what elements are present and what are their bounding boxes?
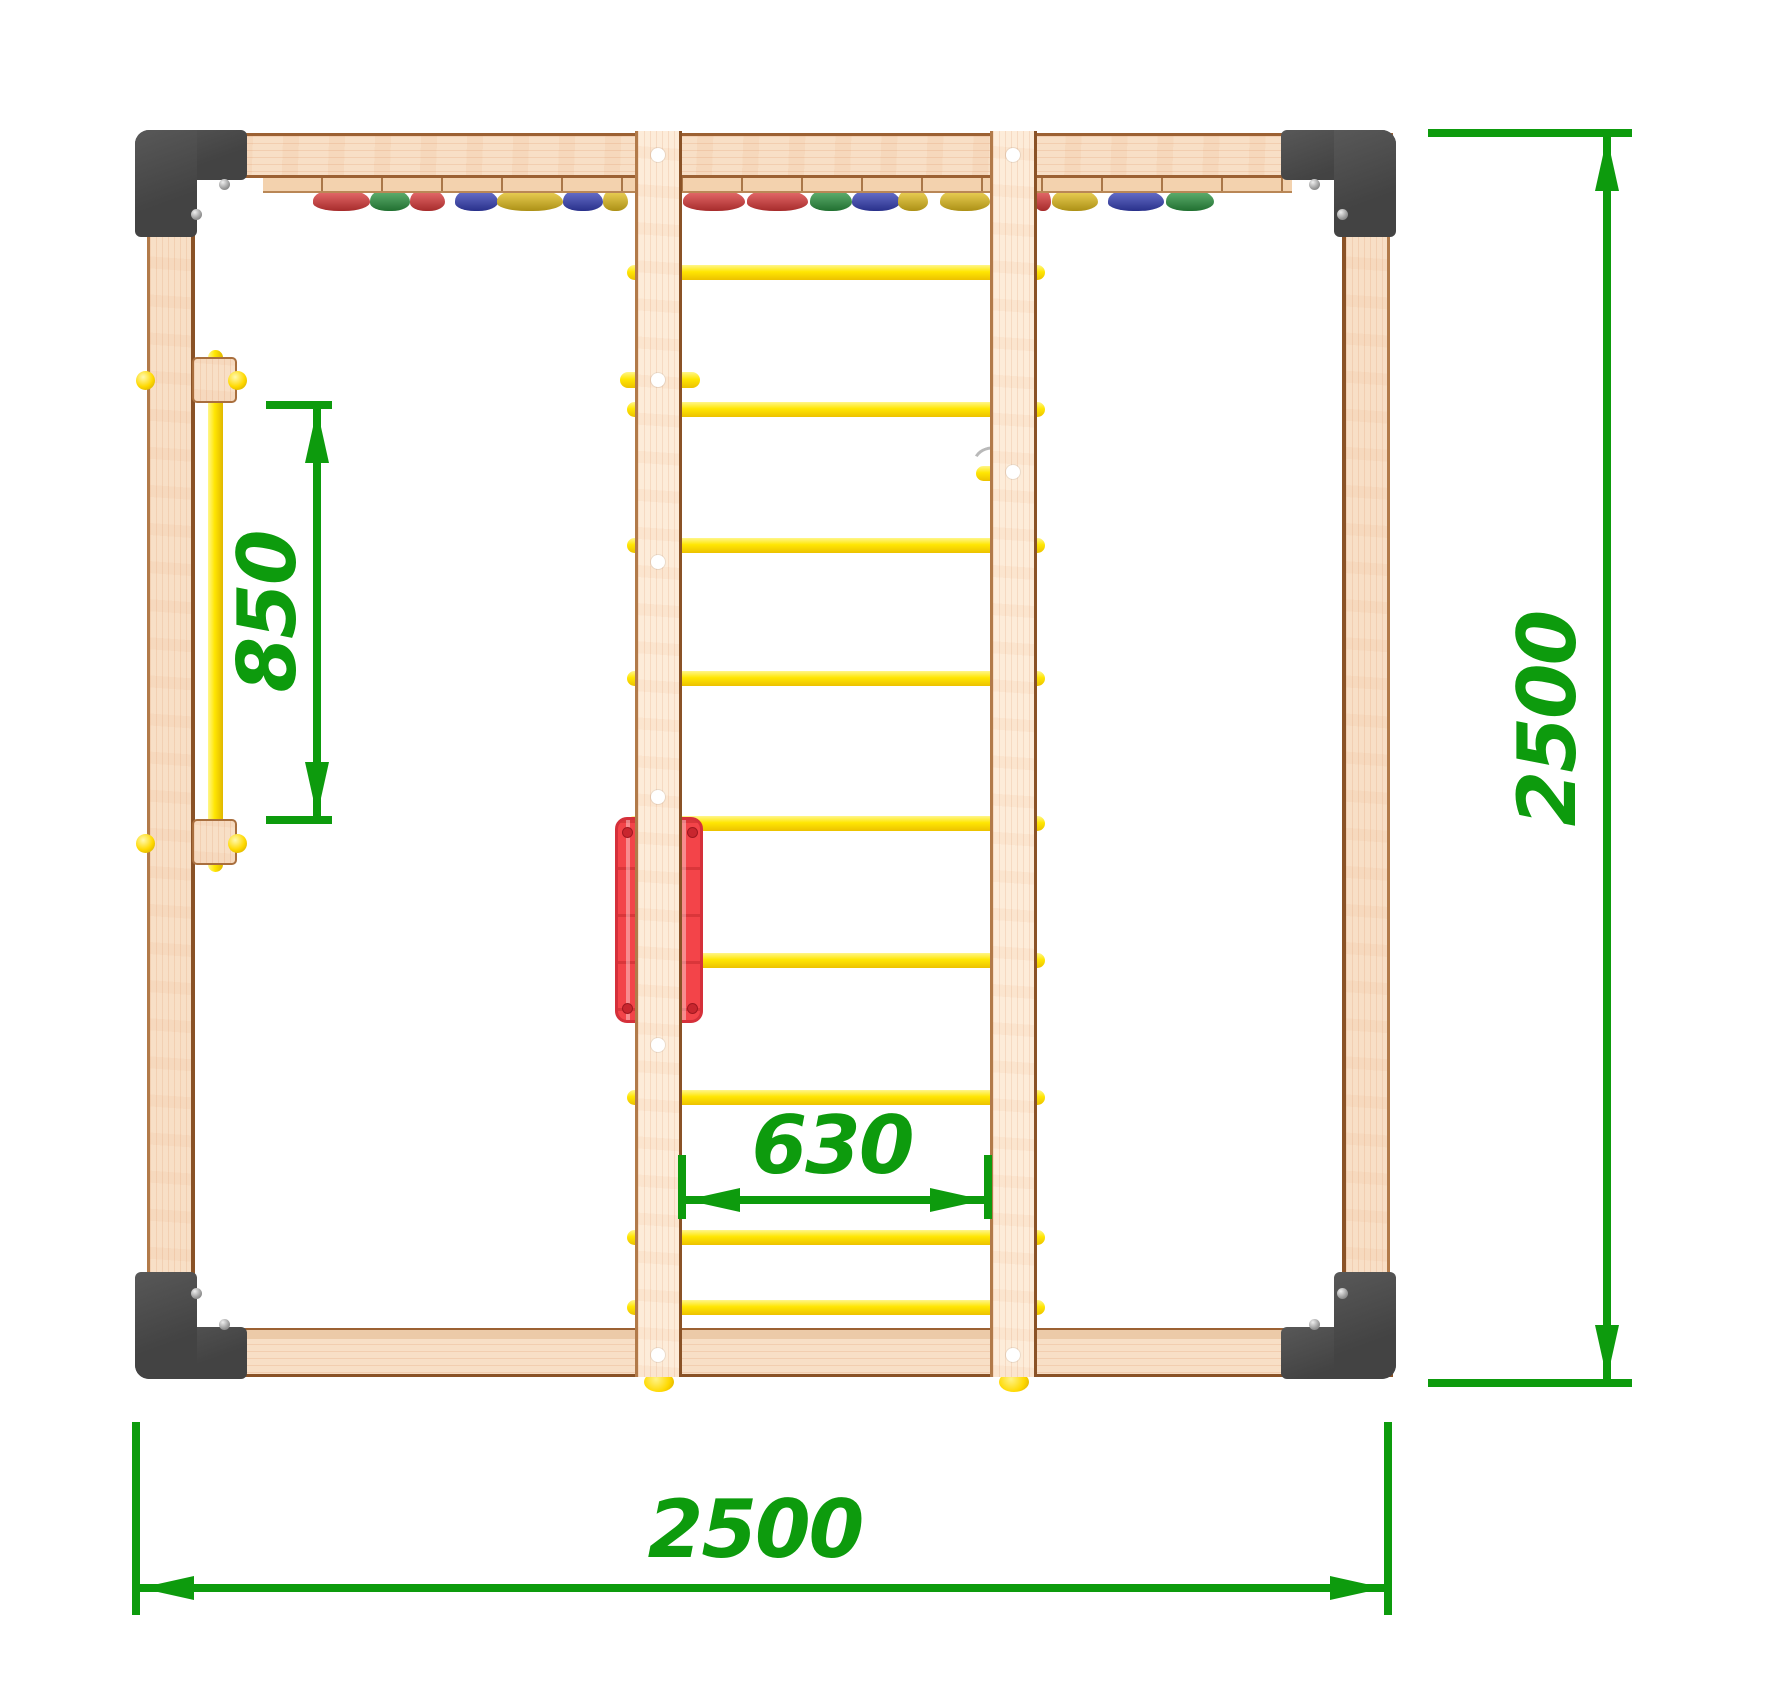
screw-hole: [651, 555, 665, 569]
ladder-rung: [627, 265, 1045, 280]
extension-line: [1428, 1379, 1632, 1387]
ladder-rung: [627, 1300, 1045, 1315]
screw-hole: [1006, 148, 1020, 162]
dimension-line: [313, 405, 321, 820]
screw-hole: [1006, 1348, 1020, 1362]
ladder-rung: [627, 402, 1045, 417]
arrowhead-left-icon: [140, 1576, 194, 1600]
screw-hole: [651, 790, 665, 804]
screw-hole: [651, 148, 665, 162]
screw-hole: [1006, 465, 1020, 479]
bracket-screw: [1337, 209, 1348, 220]
corner-bracket-top-right: [1334, 130, 1396, 237]
ladder-left-stile: [635, 131, 682, 1377]
dimension-label: 2500: [648, 1490, 863, 1570]
corner-bracket-top-left: [135, 130, 197, 237]
bracket-screw: [1337, 1288, 1348, 1299]
extension-line: [1428, 129, 1632, 137]
panel-screw: [687, 1003, 698, 1014]
ladder-rung: [627, 671, 1045, 686]
extension-line: [266, 401, 332, 409]
mount-knob: [228, 834, 247, 853]
extension-line: [984, 1155, 992, 1219]
mount-knob: [228, 371, 247, 390]
playground-top-view-drawing: 850 630 2500 2500: [0, 0, 1778, 1689]
bracket-screw: [191, 209, 202, 220]
bracket-screw: [219, 1319, 230, 1330]
dimension-line: [1603, 133, 1611, 1383]
dimension-label: 2500: [1508, 612, 1588, 827]
dimension-label: 630: [752, 1106, 913, 1186]
dimension-label: 850: [228, 532, 308, 693]
arrowhead-down-icon: [1595, 1325, 1619, 1379]
bracket-screw: [1309, 1319, 1320, 1330]
bracket-screw: [1309, 179, 1320, 190]
screw-hole: [651, 373, 665, 387]
arrowhead-down-icon: [305, 762, 329, 816]
bracket-screw: [219, 179, 230, 190]
panel-screw: [687, 827, 698, 838]
ladder-right-stile: [990, 131, 1037, 1377]
arrowhead-left-icon: [686, 1188, 740, 1212]
extension-line: [266, 816, 332, 824]
ladder-rung: [627, 538, 1045, 553]
arrowhead-up-icon: [305, 409, 329, 463]
bracket-screw: [191, 1288, 202, 1299]
screw-hole: [651, 1348, 665, 1362]
left-post: [147, 170, 195, 1335]
screw-hole: [651, 1038, 665, 1052]
ladder-rung: [627, 1230, 1045, 1245]
hold-mounting-board: [263, 178, 1292, 193]
arrowhead-right-icon: [1330, 1576, 1384, 1600]
mount-knob: [136, 371, 155, 390]
dimension-line: [136, 1584, 1388, 1592]
panel-screw: [622, 1003, 633, 1014]
top-beam: [145, 133, 1393, 178]
mount-knob: [136, 834, 155, 853]
panel-screw: [622, 827, 633, 838]
arrowhead-up-icon: [1595, 137, 1619, 191]
bottom-beam: [145, 1328, 1393, 1377]
arrowhead-right-icon: [930, 1188, 984, 1212]
extension-line: [678, 1155, 686, 1219]
right-post: [1342, 170, 1390, 1335]
corner-bracket-bottom-left: [135, 1272, 197, 1379]
